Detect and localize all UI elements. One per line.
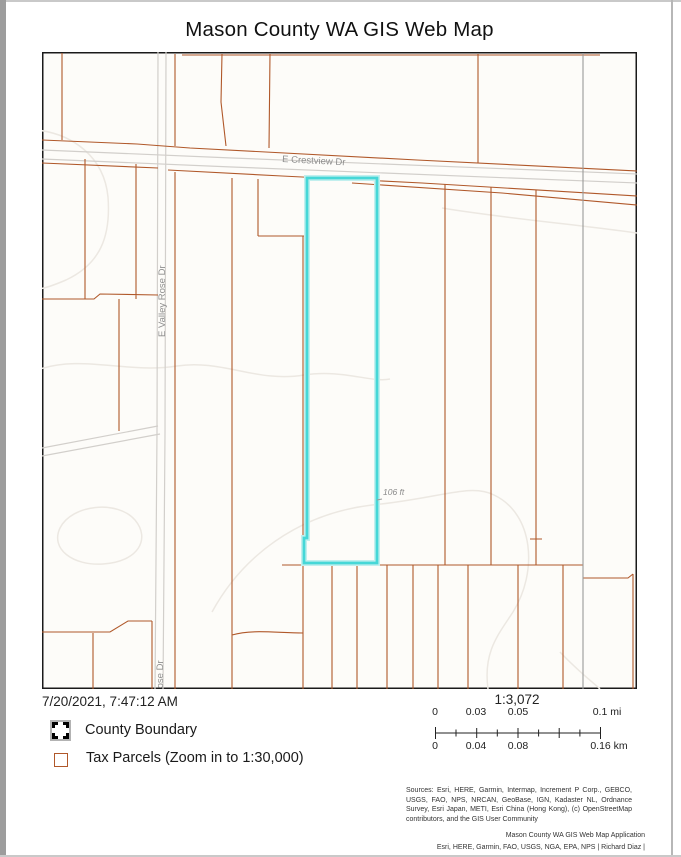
scalebar-mi-label: 0	[432, 706, 438, 718]
scalebar-mi-label: 0.1 mi	[593, 706, 622, 718]
scalebar-km-label: 0.08	[508, 740, 528, 752]
tax-parcels-swatch-icon	[54, 753, 68, 767]
county-boundary-swatch-icon	[52, 722, 69, 739]
legend-item-county-boundary: County Boundary	[52, 716, 304, 744]
scalebar-mi-label: 0.05	[508, 706, 528, 718]
page-border-left	[0, 0, 6, 857]
sources-attribution: Sources: Esri, HERE, Garmin, Intermap, I…	[406, 786, 632, 824]
page-border-right	[671, 0, 673, 857]
legend-label: County Boundary	[85, 722, 197, 738]
credits-line: Mason County WA GIS Web Map Application	[395, 830, 645, 842]
scalebar-km-label: 0.16 km	[590, 740, 627, 752]
credits: Mason County WA GIS Web Map Application …	[395, 830, 645, 853]
map-frame	[43, 53, 637, 689]
scalebar-km-label: 0.04	[466, 740, 486, 752]
map-canvas[interactable]: E Crestview Dr E Valley Rose Dr E Valley…	[42, 52, 637, 689]
credits-line: Esri, HERE, Garmin, FAO, USGS, NGA, EPA,…	[395, 842, 645, 854]
legend: County Boundary Tax Parcels (Zoom in to …	[52, 716, 304, 772]
timestamp: 7/20/2021, 7:47:12 AM	[42, 694, 178, 709]
legend-label: Tax Parcels (Zoom in to 1:30,000)	[86, 750, 304, 766]
legend-item-tax-parcels: Tax Parcels (Zoom in to 1:30,000)	[52, 744, 304, 772]
scale-ratio-label: 1:3,072	[442, 692, 592, 707]
scalebar-mi-label: 0.03	[466, 706, 486, 718]
street-label-valley-rose-bottom: E Valley Rose Dr	[155, 660, 166, 689]
measurement-label: 106 ft	[383, 487, 405, 497]
scalebar-line	[435, 726, 615, 740]
map-svg: E Crestview Dr E Valley Rose Dr E Valley…	[42, 52, 637, 689]
print-page: Mason County WA GIS Web Map	[0, 0, 681, 857]
scalebar-km-label: 0	[432, 740, 438, 752]
page-border-top	[0, 0, 681, 2]
scalebar: 0 0.03 0.05 0.1 mi 0 0.04 0.08 0.16 km	[435, 706, 635, 758]
page-title: Mason County WA GIS Web Map	[8, 18, 671, 42]
street-label-valley-rose: E Valley Rose Dr	[157, 265, 168, 337]
